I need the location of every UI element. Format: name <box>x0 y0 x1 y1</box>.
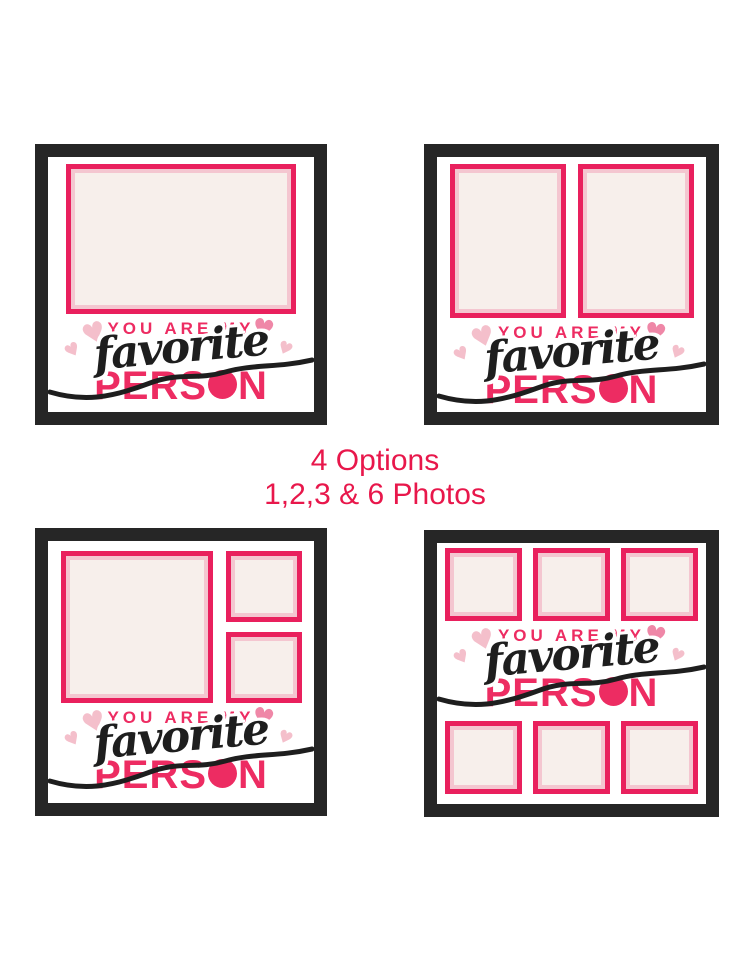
photo-placeholder <box>66 164 296 314</box>
photo-placeholder <box>450 164 566 318</box>
caption: ♥ ♥ ♥ ♥ YOU ARE MY favorite PERSN <box>48 705 314 803</box>
photo-grid-3 <box>48 541 314 703</box>
photo-placeholder <box>445 721 522 794</box>
banner-line-2: 1,2,3 & 6 Photos <box>0 478 750 512</box>
frame-3-photos: ♥ ♥ ♥ ♥ YOU ARE MY favorite PERSN <box>35 528 327 816</box>
frame-1-photo: ♥ ♥ ♥ ♥ YOU ARE MY favorite PERSN <box>35 144 327 425</box>
photo-placeholder <box>621 721 698 794</box>
photo-placeholder <box>533 548 610 621</box>
photo-placeholder <box>226 551 302 622</box>
frame-mat: ♥ ♥ ♥ ♥ YOU ARE MY favorite PERSN <box>48 157 314 412</box>
caption: ♥ ♥ ♥ ♥ YOU ARE MY favorite PERSN <box>437 623 706 721</box>
photo-grid-1 <box>48 157 314 314</box>
frame-6-photos: ♥ ♥ ♥ ♥ YOU ARE MY favorite PERSN <box>424 530 719 817</box>
photo-placeholder <box>533 721 610 794</box>
photo-grid-6-top <box>437 543 706 621</box>
caption: ♥ ♥ ♥ ♥ YOU ARE MY favorite PERSN <box>48 316 314 412</box>
banner-line-1: 4 Options <box>0 444 750 478</box>
product-image: ♥ ♥ ♥ ♥ YOU ARE MY favorite PERSN ♥ ♥ <box>0 0 750 962</box>
photo-placeholder <box>621 548 698 621</box>
photo-placeholder <box>445 548 522 621</box>
frame-2-photos: ♥ ♥ ♥ ♥ YOU ARE MY favorite PERSN <box>424 144 719 425</box>
photo-placeholder <box>61 551 213 703</box>
frame-mat: ♥ ♥ ♥ ♥ YOU ARE MY favorite PERSN <box>437 543 706 804</box>
caption: ♥ ♥ ♥ ♥ YOU ARE MY favorite PERSN <box>437 320 706 412</box>
frame-mat: ♥ ♥ ♥ ♥ YOU ARE MY favorite PERSN <box>48 541 314 803</box>
photo-placeholder <box>578 164 694 318</box>
photo-column <box>226 551 302 703</box>
photo-grid-2 <box>437 157 706 318</box>
frame-mat: ♥ ♥ ♥ ♥ YOU ARE MY favorite PERSN <box>437 157 706 412</box>
photo-placeholder <box>226 632 302 703</box>
photo-grid-6-bottom <box>437 721 706 794</box>
options-banner: 4 Options 1,2,3 & 6 Photos <box>0 444 750 512</box>
